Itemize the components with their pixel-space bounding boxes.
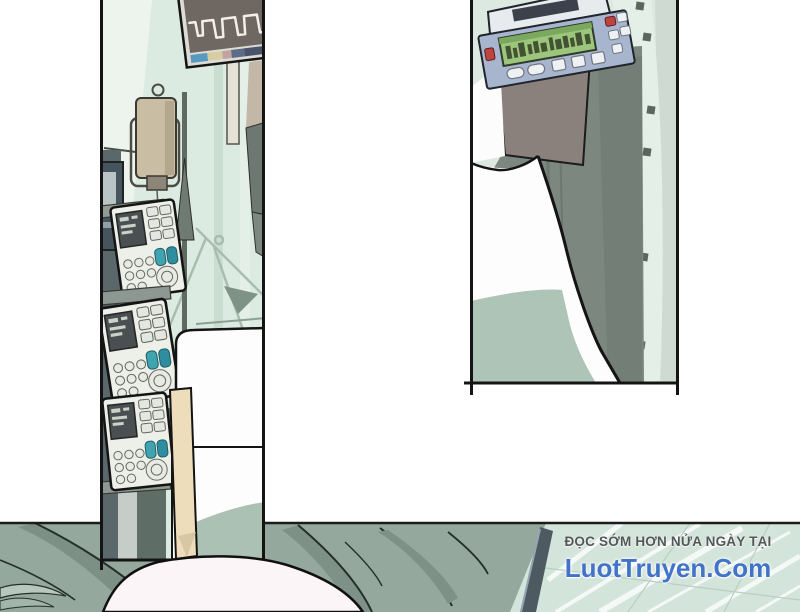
site-watermark: ĐỌC SỚM HƠN NỬA NGÀY TẠI LuotTruyen.Com <box>538 534 798 584</box>
pump-closeup-panel <box>470 0 679 383</box>
infusion-pump-1 <box>110 199 186 299</box>
watermark-tagline: ĐỌC SỚM HƠN NỬA NGÀY TẠI <box>538 534 798 551</box>
comic-art <box>0 0 800 612</box>
watermark-site-link[interactable]: LuotTruyen.Com <box>538 552 798 585</box>
monitor-pole <box>227 58 239 144</box>
comic-page: ĐỌC SỚM HƠN NỬA NGÀY TẠI LuotTruyen.Com <box>0 0 800 612</box>
hospital-room-panel <box>98 0 281 561</box>
infusion-pump-2 <box>98 298 180 405</box>
ecg-monitor <box>178 0 282 68</box>
pump-power-key <box>484 48 495 61</box>
iv-bottle-cap <box>147 176 167 190</box>
infusion-pump-3 <box>102 392 175 490</box>
